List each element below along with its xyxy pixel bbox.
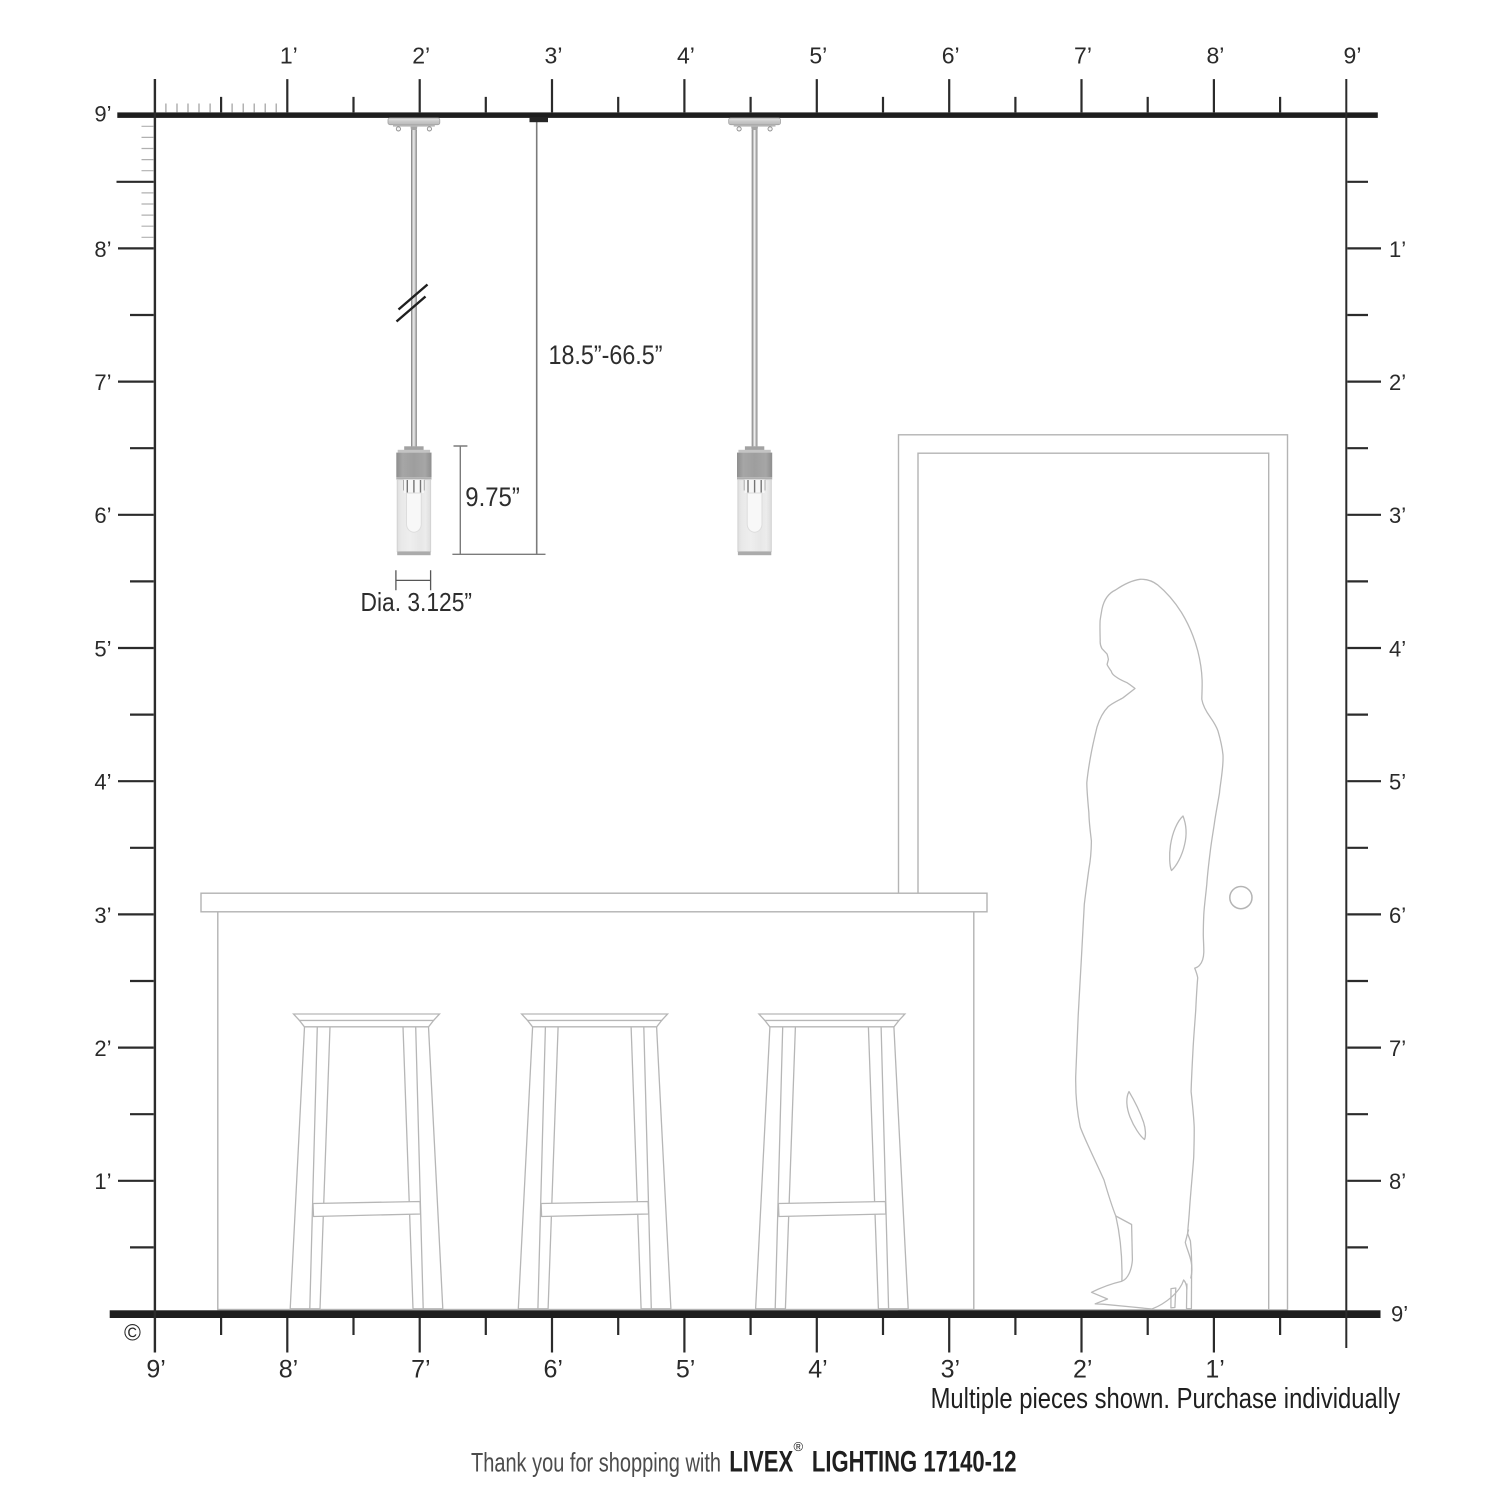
svg-text:9’: 9’ xyxy=(94,102,111,127)
svg-text:1’: 1’ xyxy=(1205,1355,1224,1383)
svg-text:®: ® xyxy=(794,1439,804,1454)
svg-text:7’: 7’ xyxy=(411,1355,430,1383)
svg-text:6’: 6’ xyxy=(94,503,111,528)
svg-text:7’: 7’ xyxy=(1074,43,1092,69)
svg-text:2’: 2’ xyxy=(1073,1355,1092,1383)
svg-text:Dia. 3.125”: Dia. 3.125” xyxy=(361,587,473,617)
svg-text:9’: 9’ xyxy=(1344,43,1362,69)
svg-text:6’: 6’ xyxy=(1389,903,1406,928)
svg-text:8’: 8’ xyxy=(1389,1169,1406,1194)
svg-text:3’: 3’ xyxy=(941,1355,960,1383)
svg-text:4’: 4’ xyxy=(1389,636,1406,661)
svg-text:9’: 9’ xyxy=(1391,1302,1408,1327)
svg-text:5’: 5’ xyxy=(1389,770,1406,795)
svg-text:2’: 2’ xyxy=(412,43,430,69)
svg-text:4’: 4’ xyxy=(808,1355,827,1383)
svg-text:Thank you for shopping with: Thank you for shopping with xyxy=(471,1447,721,1477)
svg-text:3’: 3’ xyxy=(1389,503,1406,528)
svg-text:9’: 9’ xyxy=(146,1355,165,1383)
svg-text:18.5”-66.5”: 18.5”-66.5” xyxy=(549,340,663,370)
svg-text:6’: 6’ xyxy=(543,1355,562,1383)
svg-text:9.75”: 9.75” xyxy=(465,482,520,512)
svg-text:1’: 1’ xyxy=(1389,237,1406,262)
svg-text:©: © xyxy=(124,1320,141,1346)
svg-text:3’: 3’ xyxy=(94,903,111,928)
svg-text:2’: 2’ xyxy=(94,1036,111,1061)
svg-text:6’: 6’ xyxy=(942,43,960,69)
svg-text:LIVEX: LIVEX xyxy=(729,1445,793,1478)
svg-text:5’: 5’ xyxy=(809,43,827,69)
svg-text:5’: 5’ xyxy=(94,636,111,661)
svg-text:8’: 8’ xyxy=(1206,43,1224,69)
svg-text:1’: 1’ xyxy=(280,43,298,69)
svg-text:1’: 1’ xyxy=(94,1169,111,1194)
svg-text:4’: 4’ xyxy=(94,770,111,795)
svg-text:8’: 8’ xyxy=(279,1355,298,1383)
svg-text:2’: 2’ xyxy=(1389,370,1406,395)
svg-text:Multiple pieces shown. Purchas: Multiple pieces shown. Purchase individu… xyxy=(931,1383,1401,1415)
svg-text:3’: 3’ xyxy=(545,43,563,69)
svg-text:7’: 7’ xyxy=(94,370,111,395)
svg-text:4’: 4’ xyxy=(677,43,695,69)
svg-text:8’: 8’ xyxy=(94,237,111,262)
svg-text:LIGHTING 17140-12: LIGHTING 17140-12 xyxy=(812,1445,1017,1478)
svg-text:5’: 5’ xyxy=(676,1355,695,1383)
svg-text:7’: 7’ xyxy=(1389,1036,1406,1061)
